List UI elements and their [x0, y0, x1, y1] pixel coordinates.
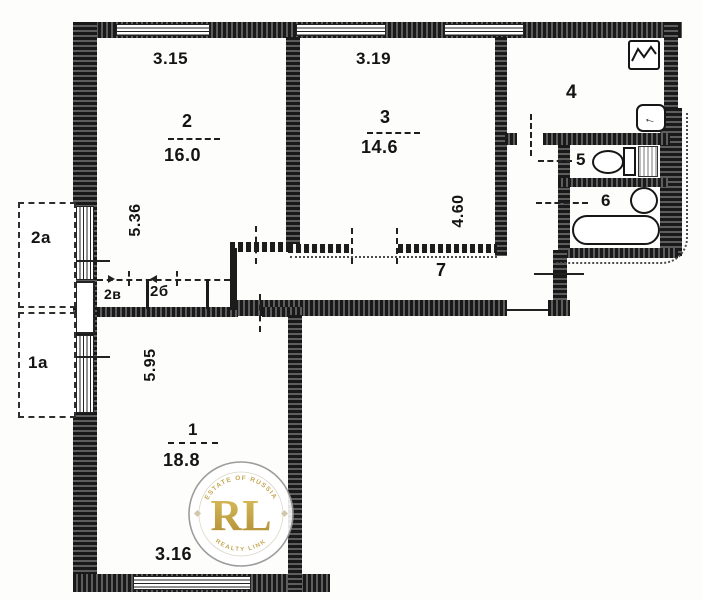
room-5-number: 5: [576, 151, 586, 168]
watermark-initials: RL: [210, 491, 271, 540]
room-3-number: 3: [380, 108, 391, 126]
window-room2-icon: [116, 24, 210, 36]
stove-icon: [628, 40, 660, 70]
floor-plan: ← 3.15 2 16.0 5.36 3.19 3 14.6 4.60 4 5 …: [0, 0, 703, 600]
window-room1-icon: [133, 576, 251, 590]
window-balcony-2a-icon: [76, 206, 94, 280]
door-tick-room3-a: [351, 228, 353, 264]
door-tick-room1: [259, 294, 261, 332]
room-2-underline: [168, 138, 220, 140]
door-tick-hall-right: [534, 273, 584, 275]
room-7-number: 7: [436, 261, 447, 279]
wall-room3-bottom-right: [398, 244, 497, 253]
closet-tick: [128, 271, 130, 286]
closet-tick: [176, 271, 178, 286]
closet-2b-label: 2б: [150, 284, 169, 299]
window-kitchen-icon: [444, 24, 524, 36]
dim-room2-width: 3.15: [153, 50, 188, 67]
hall-inner-dotted-line: [290, 256, 497, 258]
entrance-door-leaf: [507, 309, 548, 311]
wc-duct-icon: [638, 146, 658, 177]
room-3-underline: [367, 132, 420, 134]
dim-room1-depth: 5.95: [141, 335, 161, 395]
closet-divider-2: [206, 279, 209, 309]
toilet-tank-icon: [623, 147, 636, 176]
closet-arrow-icon: [108, 275, 115, 283]
room-4-number: 4: [566, 83, 577, 102]
room-2-area: 16.0: [164, 146, 201, 164]
room-6-number: 6: [601, 192, 611, 209]
wall-room3-bottom-left: [288, 244, 352, 253]
window-balcony-1a-icon: [76, 335, 94, 413]
closet-divider-1: [146, 279, 149, 309]
door-tick-room3-b: [396, 228, 398, 264]
dim-room3-depth: 4.60: [449, 181, 469, 241]
door-dash-wc: [538, 160, 572, 162]
wall-closet-right: [230, 248, 237, 310]
room-1-number: 1: [188, 421, 198, 438]
dim-room1-depth-text: 5.95: [143, 348, 159, 381]
wall-pier-left: [75, 281, 95, 334]
dim-room2-depth-text: 5.36: [128, 203, 144, 236]
vent-box-icon: ←: [636, 104, 666, 132]
window-room3-icon: [296, 24, 386, 36]
closet-arrow-icon: [150, 275, 157, 283]
room-3-area: 14.6: [361, 138, 398, 156]
wall-room1-top-left: [97, 307, 238, 317]
sink-icon: [630, 187, 658, 214]
balcony-1a-label: 1а: [28, 354, 48, 371]
wall-wc-bath-divider: [558, 178, 668, 187]
toilet-bowl-icon: [592, 150, 624, 174]
wall-kitchen-bottom-left: [505, 133, 517, 145]
closet-2v-label: 2в: [104, 287, 121, 301]
watermark-logo: ESTATE OF RUSSIA REALTY LINK RL: [186, 459, 296, 569]
dim-room2-depth: 5.36: [126, 190, 146, 250]
wall-room3-corridor: [495, 37, 507, 256]
door-tick-kitchen: [530, 114, 532, 156]
closet-front-dashed: [97, 279, 230, 281]
wall-room2-bottom: [230, 242, 288, 252]
door-tick-room2: [255, 226, 257, 264]
vent-arrow-icon: ←: [643, 111, 659, 127]
dim-room3-width: 3.19: [356, 50, 391, 67]
balcony-2a-label: 2а: [31, 229, 51, 246]
balcony-2a: [18, 202, 76, 308]
wall-room2-room3: [286, 37, 300, 252]
wall-hall-bottom-right: [548, 300, 570, 316]
wall-kitchen-bottom-right: [543, 133, 670, 145]
wall-right-kitchen: [664, 22, 678, 114]
dim-room3-depth-text: 4.60: [451, 194, 467, 227]
room-1-underline: [168, 442, 218, 444]
room-2-number: 2: [182, 112, 193, 130]
door-dash-bath: [536, 202, 588, 204]
bathtub-icon: [572, 215, 660, 245]
